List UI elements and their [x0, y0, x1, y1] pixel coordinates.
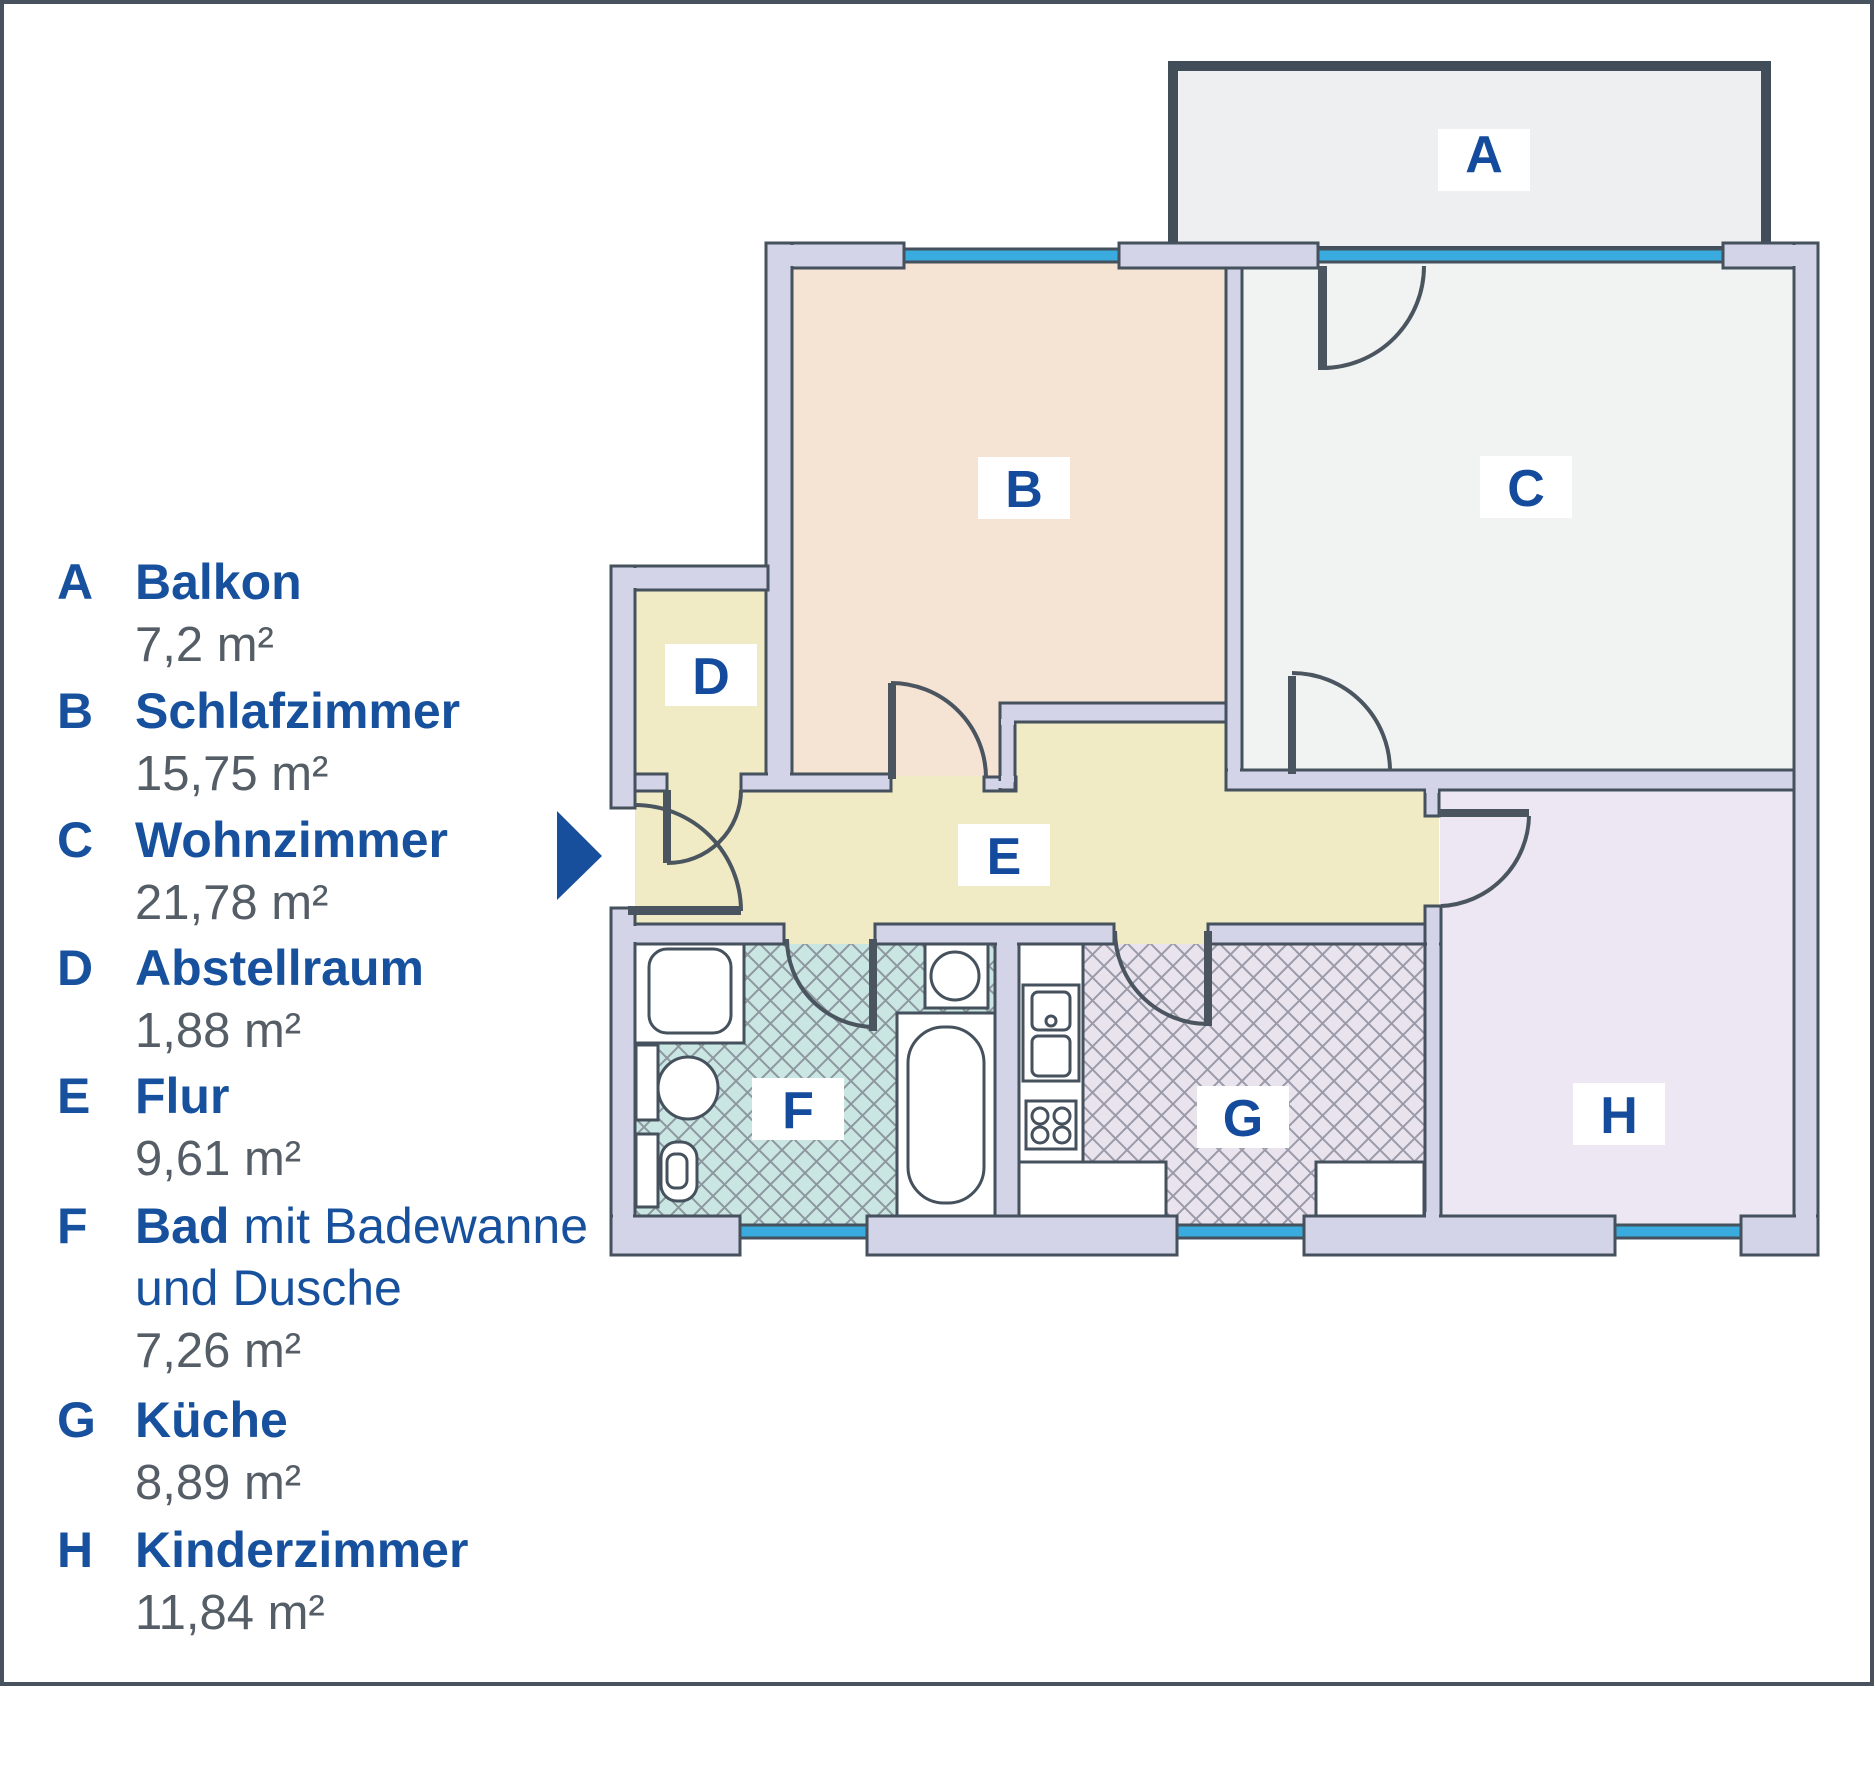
svg-text:21,78 m²: 21,78 m² — [135, 876, 328, 930]
svg-text:C: C — [57, 812, 93, 868]
svg-text:Balkon: Balkon — [135, 554, 302, 610]
svg-text:11,84 m²: 11,84 m² — [135, 1586, 325, 1640]
svg-text:H: H — [57, 1522, 93, 1578]
svg-text:und Dusche: und Dusche — [135, 1260, 402, 1316]
svg-text:Kinderzimmer: Kinderzimmer — [135, 1522, 468, 1578]
svg-text:G: G — [1223, 1090, 1263, 1148]
svg-text:B: B — [1005, 461, 1043, 519]
svg-text:B: B — [57, 683, 93, 739]
svg-text:A: A — [57, 554, 93, 610]
svg-text:Flur: Flur — [135, 1068, 229, 1124]
svg-text:D: D — [57, 940, 93, 996]
svg-text:Wohnzimmer: Wohnzimmer — [135, 812, 448, 868]
svg-text:F: F — [57, 1198, 88, 1254]
svg-text:E: E — [57, 1068, 90, 1124]
svg-text:Bad mit Badewanne: Bad mit Badewanne — [135, 1198, 588, 1254]
svg-text:C: C — [1507, 460, 1545, 518]
svg-text:Küche: Küche — [135, 1392, 288, 1448]
svg-text:1,88 m²: 1,88 m² — [135, 1004, 301, 1058]
svg-text:G: G — [57, 1392, 96, 1448]
svg-text:9,61 m²: 9,61 m² — [135, 1132, 301, 1186]
svg-text:8,89 m²: 8,89 m² — [135, 1456, 301, 1510]
svg-text:Abstellraum: Abstellraum — [135, 940, 424, 996]
svg-text:D: D — [692, 648, 730, 706]
svg-text:7,26 m²: 7,26 m² — [135, 1324, 301, 1378]
svg-text:Schlafzimmer: Schlafzimmer — [135, 683, 460, 739]
svg-text:A: A — [1465, 126, 1503, 184]
svg-text:15,75 m²: 15,75 m² — [135, 747, 328, 801]
svg-text:E: E — [987, 828, 1022, 886]
svg-text:F: F — [782, 1082, 814, 1140]
svg-text:H: H — [1600, 1087, 1638, 1145]
svg-text:7,2 m²: 7,2 m² — [135, 618, 274, 672]
